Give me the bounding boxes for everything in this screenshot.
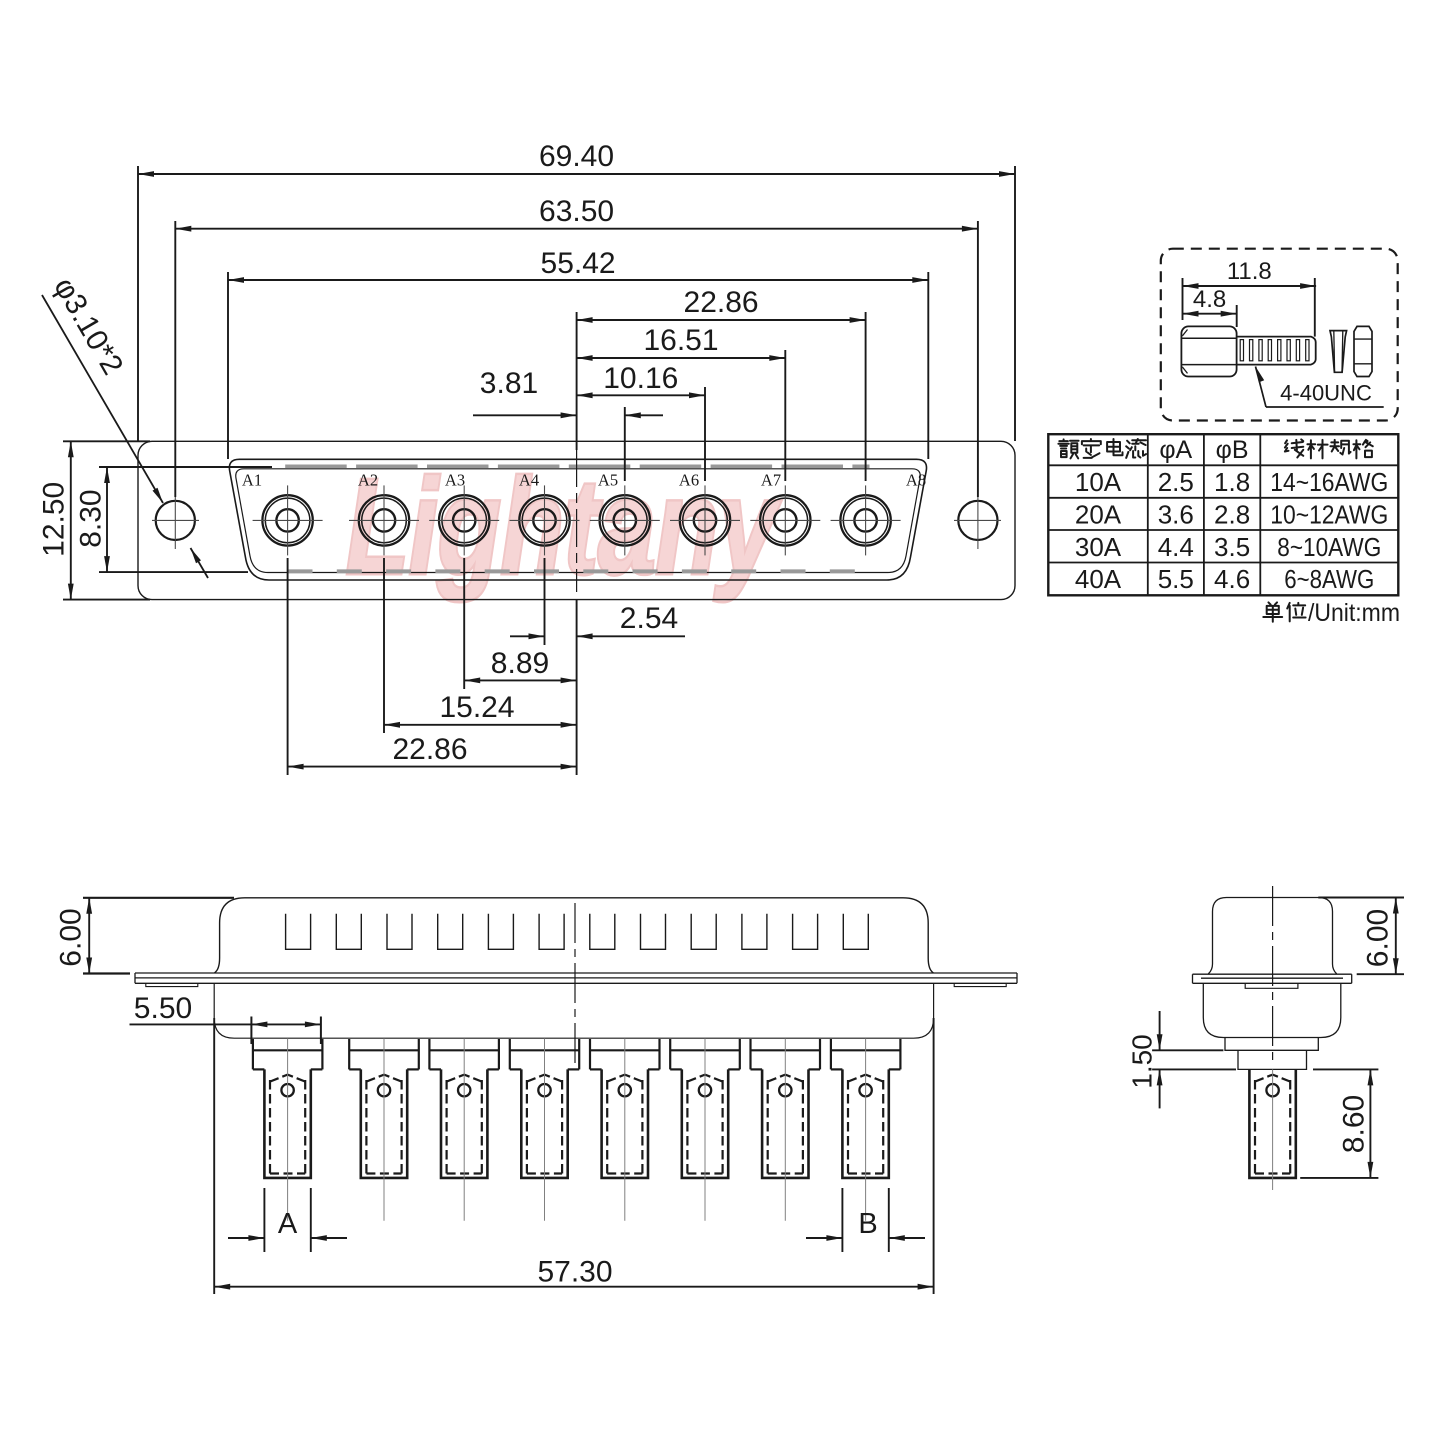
svg-text:8.30: 8.30 bbox=[74, 489, 107, 547]
svg-text:10~12AWG: 10~12AWG bbox=[1270, 499, 1388, 529]
svg-text:4.8: 4.8 bbox=[1193, 286, 1226, 313]
svg-text:6.00: 6.00 bbox=[1362, 909, 1395, 967]
svg-text:2.5: 2.5 bbox=[1158, 467, 1194, 497]
svg-text:8.60: 8.60 bbox=[1337, 1095, 1370, 1153]
svg-text:20A: 20A bbox=[1075, 499, 1122, 529]
svg-text:/Unit:mm: /Unit:mm bbox=[1308, 599, 1400, 627]
svg-text:3.81: 3.81 bbox=[480, 367, 538, 400]
svg-text:4.6: 4.6 bbox=[1214, 564, 1250, 594]
svg-text:A8: A8 bbox=[906, 471, 926, 490]
svg-text:2.8: 2.8 bbox=[1214, 499, 1250, 529]
svg-text:A5: A5 bbox=[598, 471, 618, 490]
svg-text:3.5: 3.5 bbox=[1214, 532, 1250, 562]
svg-text:4.4: 4.4 bbox=[1158, 532, 1194, 562]
svg-text:A7: A7 bbox=[761, 471, 781, 490]
svg-text:10.16: 10.16 bbox=[603, 362, 678, 395]
svg-text:10A: 10A bbox=[1075, 467, 1122, 497]
svg-text:14~16AWG: 14~16AWG bbox=[1270, 467, 1388, 497]
svg-text:4-40UNC: 4-40UNC bbox=[1280, 381, 1372, 406]
svg-text:5.5: 5.5 bbox=[1158, 564, 1194, 594]
svg-text:8~10AWG: 8~10AWG bbox=[1277, 532, 1381, 562]
svg-text:15.24: 15.24 bbox=[439, 691, 514, 724]
svg-text:A3: A3 bbox=[445, 471, 465, 490]
svg-text:63.50: 63.50 bbox=[539, 195, 614, 228]
svg-text:φB: φB bbox=[1216, 436, 1249, 464]
svg-text:12.50: 12.50 bbox=[38, 482, 71, 557]
svg-text:3.6: 3.6 bbox=[1158, 499, 1194, 529]
svg-text:22.86: 22.86 bbox=[684, 286, 759, 319]
svg-text:φA: φA bbox=[1159, 436, 1192, 464]
svg-text:22.86: 22.86 bbox=[392, 733, 467, 766]
svg-text:57.30: 57.30 bbox=[537, 1256, 612, 1289]
svg-text:6.00: 6.00 bbox=[54, 908, 87, 966]
svg-text:A: A bbox=[278, 1208, 298, 1240]
svg-text:1.50: 1.50 bbox=[1126, 1034, 1157, 1089]
svg-text:30A: 30A bbox=[1075, 532, 1122, 562]
svg-text:69.40: 69.40 bbox=[539, 140, 614, 173]
svg-text:6~8AWG: 6~8AWG bbox=[1284, 564, 1374, 594]
svg-text:A6: A6 bbox=[679, 471, 699, 490]
svg-text:40A: 40A bbox=[1075, 564, 1122, 594]
svg-text:A2: A2 bbox=[358, 471, 378, 490]
svg-text:A1: A1 bbox=[242, 471, 262, 490]
svg-text:5.50: 5.50 bbox=[134, 992, 192, 1025]
svg-text:1.8: 1.8 bbox=[1214, 467, 1250, 497]
svg-text:B: B bbox=[858, 1208, 877, 1240]
svg-text:2.54: 2.54 bbox=[620, 602, 678, 635]
svg-text:55.42: 55.42 bbox=[541, 247, 616, 280]
svg-text:11.8: 11.8 bbox=[1227, 258, 1272, 285]
svg-text:16.51: 16.51 bbox=[643, 324, 718, 357]
svg-text:A4: A4 bbox=[519, 471, 539, 490]
svg-text:8.89: 8.89 bbox=[491, 647, 549, 680]
